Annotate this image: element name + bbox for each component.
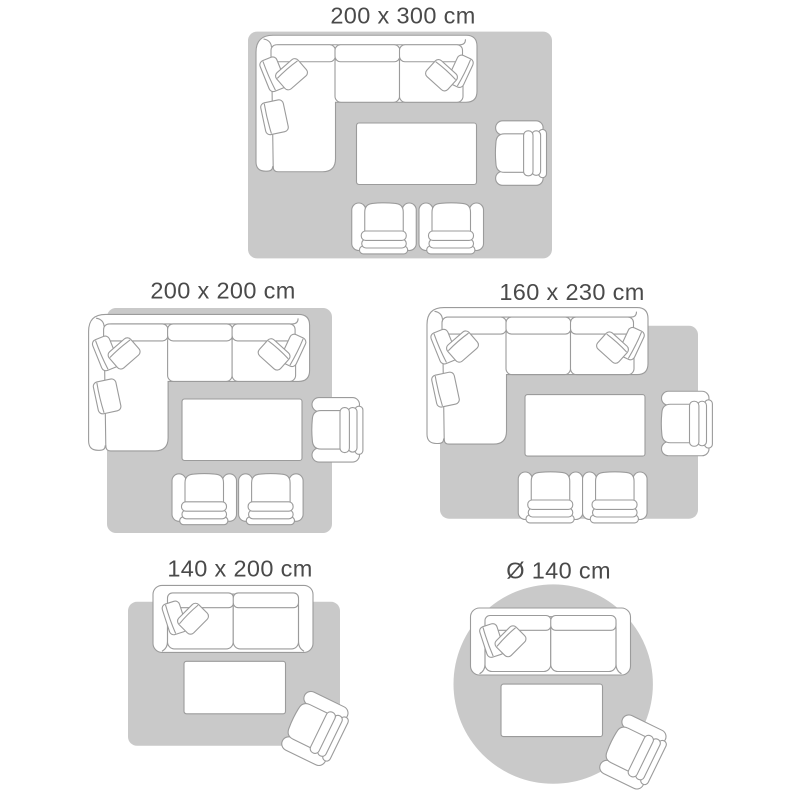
svg-text:200 x 300 cm: 200 x 300 cm bbox=[330, 3, 475, 29]
svg-text:140 x 200 cm: 140 x 200 cm bbox=[167, 555, 312, 581]
svg-text:160 x 230 cm: 160 x 230 cm bbox=[499, 279, 644, 305]
svg-text:200 x 200 cm: 200 x 200 cm bbox=[150, 278, 295, 304]
svg-text:Ø 140 cm: Ø 140 cm bbox=[506, 557, 611, 583]
